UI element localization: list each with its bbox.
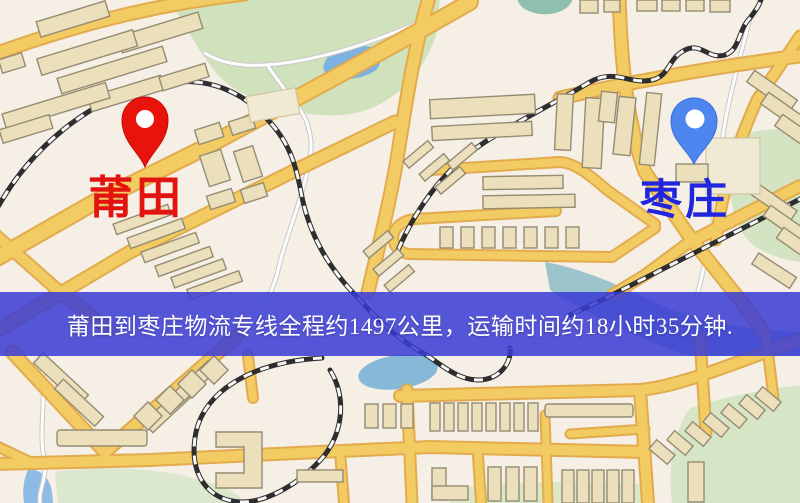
origin-label: 莆田	[88, 176, 184, 221]
origin-pin-icon[interactable]	[122, 97, 168, 167]
map-canvas[interactable]	[0, 0, 800, 503]
route-info-text: 莆田到枣庄物流专线全程约1497公里，运输时间约18小时35分钟.	[0, 292, 800, 356]
destination-label: 枣庄	[640, 180, 730, 222]
route-info-banner: 莆田到枣庄物流专线全程约1497公里，运输时间约18小时35分钟.	[0, 292, 800, 356]
map-view: 莆田 枣庄 莆田到枣庄物流专线全程约1497公里，运输时间约18小时35分钟.	[0, 0, 800, 503]
